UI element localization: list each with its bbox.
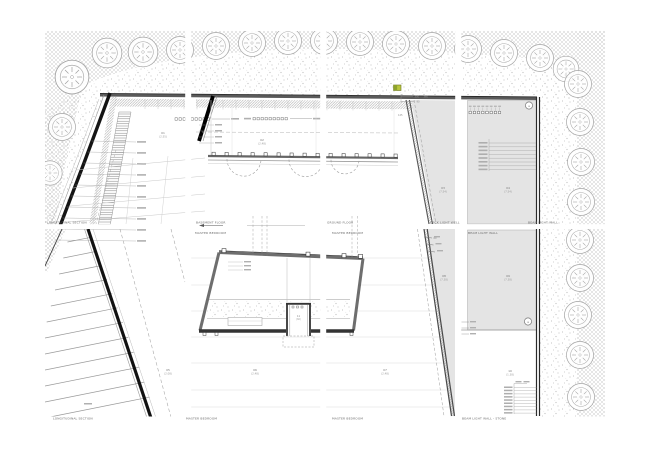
svg-text:08: 08 (442, 274, 446, 278)
green-survey-marker (394, 85, 402, 91)
caption-panel2: BASEMENT FLOOR (196, 221, 226, 225)
caption-panel6-top: MASTER BEDROOM (195, 231, 226, 235)
svg-text:05: 05 (166, 368, 170, 372)
caption-panel1: LONGITUDINAL SECTION (47, 221, 87, 225)
light-well-upper (468, 101, 537, 225)
svg-text:(2.55): (2.55) (159, 135, 167, 139)
caption-panel3: GROUND FLOOR (327, 221, 353, 225)
area-label: 07(2.48) (381, 368, 389, 376)
svg-text:(2.48): (2.48) (381, 372, 389, 376)
svg-text:(7.38): (7.38) (504, 278, 512, 282)
svg-text:(2.08): (2.08) (164, 372, 172, 376)
area-label: 01(2.55) (159, 131, 167, 139)
svg-text:06: 06 (253, 368, 257, 372)
svg-text:(7.54): (7.54) (439, 190, 447, 194)
svg-text:(2.48): (2.48) (258, 142, 266, 146)
caption-panel8-top: BEAM LIGHT WALL (468, 231, 498, 235)
caption-panel8-bottom: BEAM LIGHT WALL - STONE (462, 417, 506, 421)
light-well-lower (468, 230, 537, 330)
caption-panel4b: BEAM LIGHT WALL (528, 221, 558, 225)
detail-marker-label: a (527, 320, 529, 324)
dim-text: 125 (398, 114, 403, 117)
site-plan-drawing: a a 300 360 90 125 60 01(2.55) 02(2.48) … (0, 0, 650, 459)
caption-panel5-bottom: LONGITUDINAL SECTION (53, 417, 93, 421)
dim-text: 360 (424, 96, 429, 99)
area-label: 10(1.38) (506, 369, 514, 377)
svg-text:10: 10 (508, 369, 512, 373)
terrace-steps-p1 (67, 156, 205, 224)
dim-text: 90 (417, 101, 421, 104)
area-label: 02(2.48) (258, 138, 266, 146)
courtyard-wall-lower (88, 229, 152, 421)
svg-text:04: 04 (506, 186, 510, 190)
dim-text: 300 (415, 96, 420, 99)
building-upper (50, 93, 540, 242)
svg-text:09: 09 (506, 274, 510, 278)
area-label: 06(2.48) (251, 368, 259, 376)
svg-text:(60): (60) (296, 318, 301, 321)
stair-rungs (45, 237, 150, 418)
dim-square-row-p2 (253, 118, 287, 120)
svg-text:(2.48): (2.48) (251, 372, 259, 376)
svg-text:03: 03 (441, 186, 445, 190)
svg-text:(1.38): (1.38) (506, 373, 514, 377)
caption-panel6-bottom: MASTER BEDROOM (186, 417, 217, 421)
caption-panel7-bottom: MASTER BEDROOM (332, 417, 363, 421)
area-label: 05(2.08) (164, 368, 172, 376)
svg-text:02: 02 (260, 138, 264, 142)
svg-text:(7.54): (7.54) (504, 190, 512, 194)
callout-stack-p8 (504, 387, 537, 414)
building-lower (45, 229, 540, 421)
detail-marker-label: a (528, 104, 530, 108)
svg-text:01: 01 (161, 131, 165, 135)
caption-panel7-top: MASTER BEDROOM (332, 231, 363, 235)
svg-text:07: 07 (383, 368, 387, 372)
dim-text: 60 (434, 237, 438, 240)
site-plan-sheet: a a 300 360 90 125 60 01(2.55) 02(2.48) … (0, 0, 650, 459)
svg-text:(7.38): (7.38) (440, 278, 448, 282)
caption-panel4a: DECK LIGHT WELL (430, 221, 460, 225)
